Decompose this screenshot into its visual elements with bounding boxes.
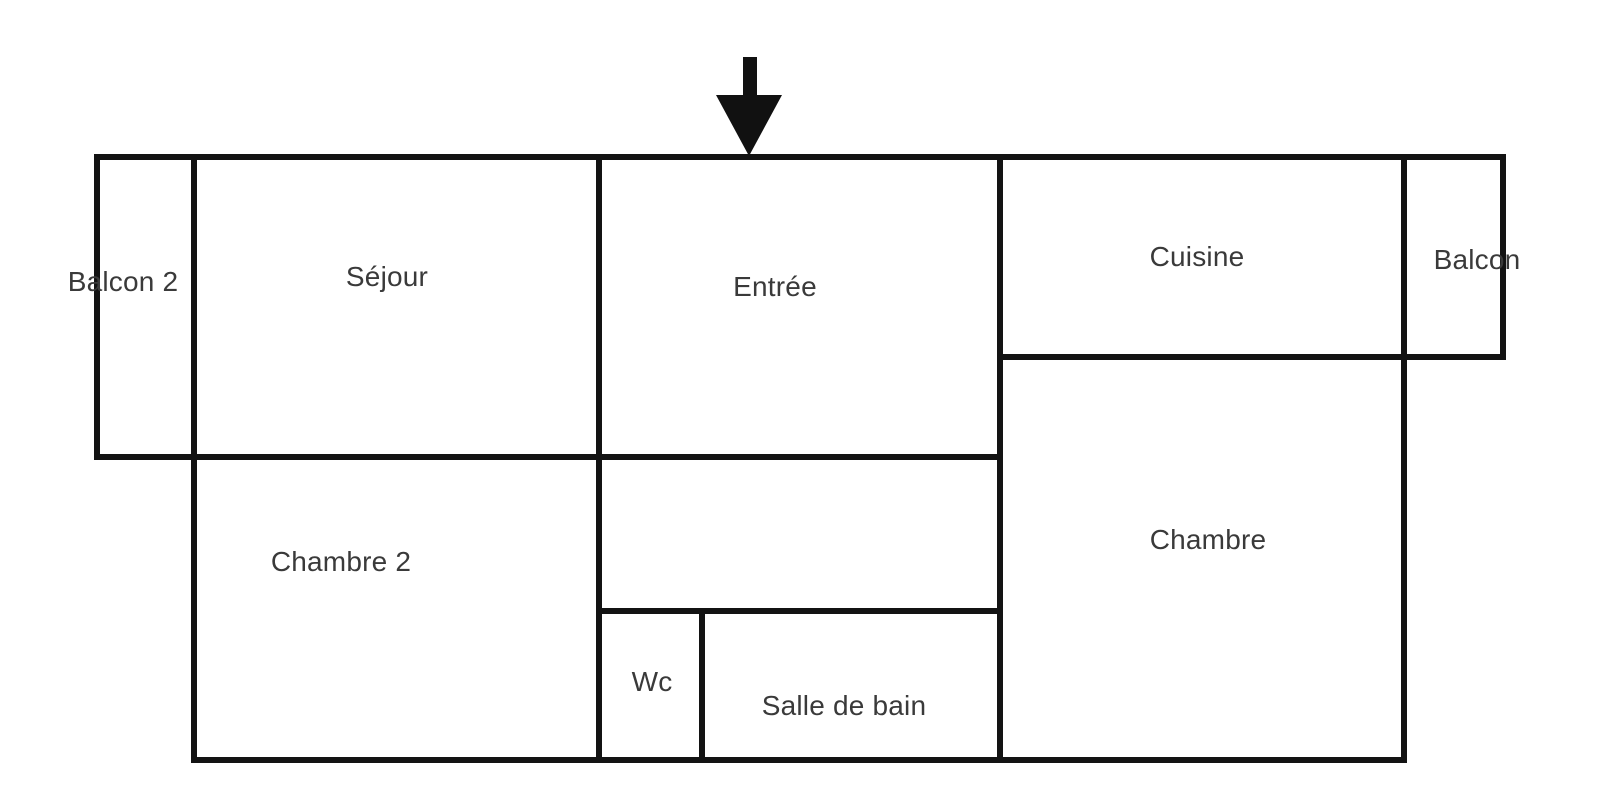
wall-central: [596, 154, 602, 763]
wall-top: [94, 154, 1506, 160]
wall-sejour-entree-bottom: [94, 454, 1003, 460]
wall-cuisine-balcon-bottom: [997, 354, 1506, 360]
room-label-chambre-2: Chambre 2: [271, 546, 411, 578]
room-label-cuisine: Cuisine: [1150, 241, 1245, 273]
room-label-salle-de-bain: Salle de bain: [762, 690, 927, 722]
room-label-entree: Entrée: [733, 271, 817, 303]
room-label-wc: Wc: [632, 666, 673, 698]
wall-wc-bath-top: [596, 608, 1003, 614]
room-label-chambre: Chambre: [1150, 524, 1267, 556]
entrance-down-arrow-icon: [700, 50, 800, 162]
wall-east-inner: [997, 154, 1003, 763]
room-label-sejour: Séjour: [346, 261, 428, 293]
wall-east: [1401, 154, 1407, 763]
wall-bottom: [191, 757, 1407, 763]
wall-wc-right: [699, 609, 705, 763]
wall-west: [191, 154, 197, 763]
room-label-balcon: Balcon: [1434, 244, 1521, 276]
wall-balcon2-left: [94, 154, 100, 460]
floor-plan: Balcon 2 Séjour Entrée Cuisine Balcon Ch…: [0, 0, 1600, 812]
room-label-balcon-2: Balcon 2: [68, 266, 179, 298]
